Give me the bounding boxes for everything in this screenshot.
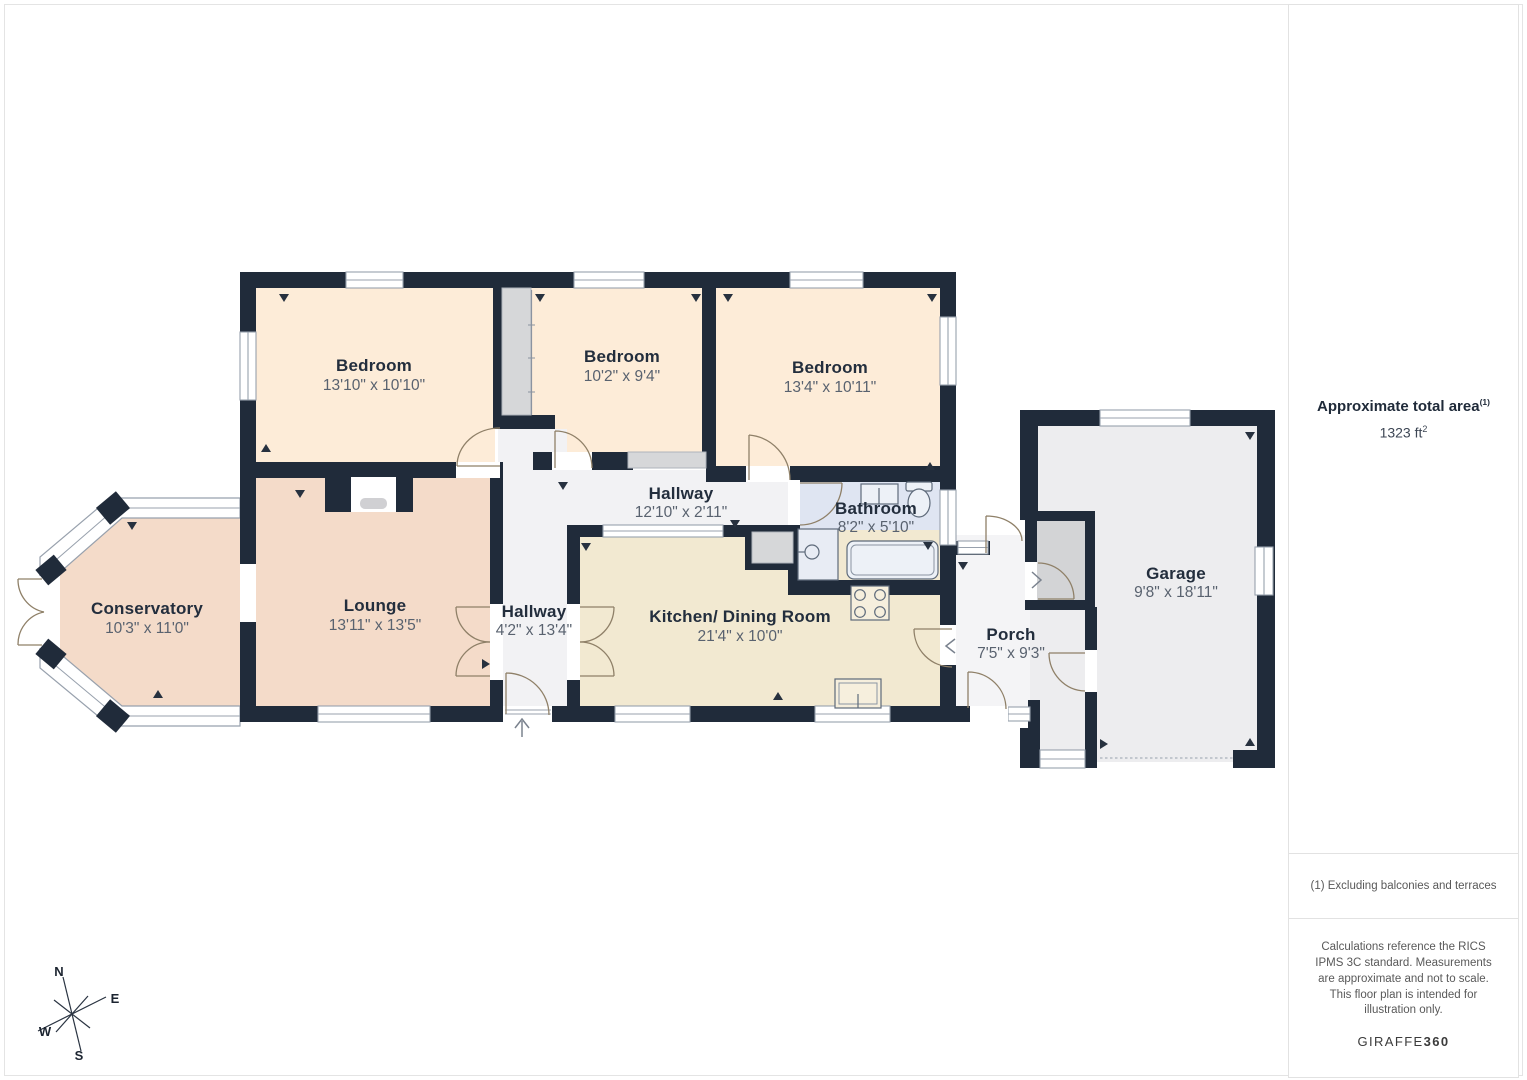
label-hallway-main: Hallway	[502, 602, 567, 621]
total-area-value: 1323 ft2	[1289, 424, 1518, 441]
disclaimer-text: Calculations reference the RICS IPMS 3C …	[1306, 940, 1501, 1019]
dims-bedroom-3: 13'4" x 10'11"	[784, 379, 876, 396]
label-kitchen-dining: Kitchen/ Dining Room	[649, 607, 831, 626]
dims-bedroom-1: 13'10" x 10'10"	[323, 377, 425, 394]
total-area-number: 1323 ft	[1380, 425, 1423, 441]
label-bedroom-1: Bedroom	[336, 356, 412, 375]
label-lounge: Lounge	[344, 596, 407, 615]
label-conservatory: Conservatory	[91, 599, 203, 618]
compass-w: W	[39, 1024, 52, 1039]
stove	[851, 586, 889, 620]
disclaimer-panel: Calculations reference the RICS IPMS 3C …	[1288, 918, 1519, 1078]
floorplan-page: Bedroom 13'10" x 10'10" Bedroom 10'2" x …	[0, 0, 1527, 1080]
dims-porch: 7'5" x 9'3"	[977, 645, 1045, 662]
porch-store	[1037, 521, 1085, 600]
wardrobe	[502, 288, 531, 415]
brand-name: GIRAFFE	[1357, 1034, 1423, 1049]
brand-logo: GIRAFFE360	[1306, 1034, 1501, 1049]
compass-rose-icon: N E W S	[38, 964, 120, 1063]
total-area-unit-sup: 2	[1422, 424, 1427, 434]
dims-bedroom-2: 10'2" x 9'4"	[584, 368, 660, 385]
dims-bathroom: 8'2" x 5'10"	[838, 519, 914, 536]
compass-s: S	[75, 1048, 84, 1063]
label-hallway-top: Hallway	[649, 484, 714, 503]
label-bedroom-3: Bedroom	[792, 358, 868, 377]
total-area-label: Approximate total area(1)	[1289, 397, 1518, 415]
compass-e: E	[111, 991, 120, 1006]
footnote-panel: (1) Excluding balconies and terraces	[1288, 853, 1519, 919]
info-sidebar: Approximate total area(1) 1323 ft2 (1) E…	[1288, 4, 1521, 1076]
shower	[798, 529, 838, 580]
total-area-panel: Approximate total area(1) 1323 ft2	[1288, 4, 1519, 854]
label-bathroom: Bathroom	[835, 499, 917, 518]
compass-n: N	[54, 964, 63, 979]
total-area-text: Approximate total area	[1317, 398, 1480, 415]
footnote-text: (1) Excluding balconies and terraces	[1310, 880, 1496, 892]
bathtub	[847, 541, 938, 579]
label-garage: Garage	[1146, 564, 1206, 583]
total-area-footnote-ref: (1)	[1480, 397, 1490, 407]
dims-hallway-top: 12'10" x 2'11"	[635, 504, 727, 521]
dims-lounge: 13'11" x 13'5"	[329, 617, 421, 634]
dims-garage: 9'8" x 18'11"	[1134, 584, 1218, 601]
dims-hallway-main: 4'2" x 13'4"	[496, 622, 572, 639]
label-porch: Porch	[986, 625, 1035, 644]
dims-conservatory: 10'3" x 11'0"	[105, 620, 189, 637]
hall-cupboard	[628, 452, 706, 468]
kitchen-cupboard	[752, 532, 793, 563]
kitchen-sink	[835, 679, 881, 708]
brand-suffix: 360	[1424, 1034, 1450, 1049]
fireplace	[351, 477, 396, 512]
dims-kitchen-dining: 21'4" x 10'0"	[697, 628, 782, 645]
label-bedroom-2: Bedroom	[584, 347, 660, 366]
